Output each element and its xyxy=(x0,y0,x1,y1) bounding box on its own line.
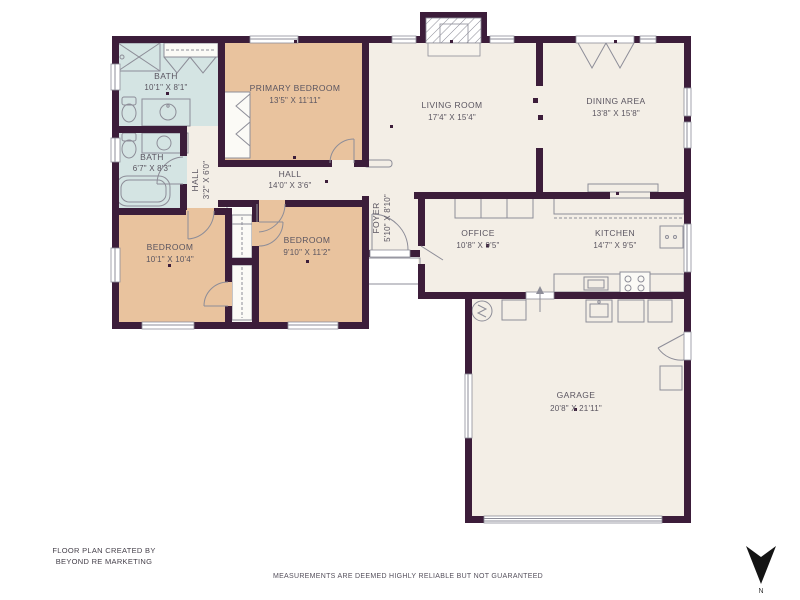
room-label-hall: HALL xyxy=(279,169,302,179)
room-dims-dining-area: 13'8" X 15'8" xyxy=(592,109,640,118)
room-label-dining-area: DINING AREA xyxy=(586,96,645,106)
north-label: N xyxy=(758,588,763,595)
fireplace xyxy=(420,12,487,56)
disclaimer-text: MEASUREMENTS ARE DEEMED HIGHLY RELIABLE … xyxy=(273,573,543,580)
room-label-bedroom-right: BEDROOM xyxy=(284,235,331,245)
room-label-bath1: BATH xyxy=(154,71,178,81)
room-label-hall-small: HALL xyxy=(190,169,200,192)
room-label-office: OFFICE xyxy=(461,228,495,238)
room-dims-garage: 20'8" X 21'11" xyxy=(550,404,602,413)
footer: FLOOR PLAN CREATED BY BEYOND RE MARKETIN… xyxy=(52,546,776,595)
room-label-bath2: BATH xyxy=(140,152,164,162)
room-label-foyer: FOYER xyxy=(371,202,381,233)
room-dims-primary-bedroom: 13'5" X 11'11" xyxy=(269,96,320,105)
floor-plan-page: BATH 10'1" X 8'1" PRIMARY BEDROOM 13'5" … xyxy=(0,0,800,600)
credit-line-2: BEYOND RE MARKETING xyxy=(56,557,153,566)
room-dims-bedroom-left: 10'1" X 10'4" xyxy=(146,255,194,264)
room-label-bedroom-left: BEDROOM xyxy=(147,242,194,252)
room-dims-bedroom-right: 9'10" X 11'2" xyxy=(283,248,330,257)
room-dims-bath2: 6'7" X 8'3" xyxy=(133,164,172,173)
room-dims-hall-small: 3'2" X 6'0" xyxy=(202,161,211,200)
floor-plan-drawing: BATH 10'1" X 8'1" PRIMARY BEDROOM 13'5" … xyxy=(0,0,800,600)
room-dims-kitchen: 14'7" X 9'5" xyxy=(593,241,636,250)
north-arrow-icon: N xyxy=(746,546,776,595)
room-dims-foyer: 5'10" X 8'10" xyxy=(383,194,392,242)
room-label-kitchen: KITCHEN xyxy=(595,228,635,238)
room-label-primary-bedroom: PRIMARY BEDROOM xyxy=(250,83,341,93)
room-label-garage: GARAGE xyxy=(557,390,596,400)
credit-line-1: FLOOR PLAN CREATED BY xyxy=(52,546,155,555)
room-dims-hall: 14'0" X 3'6" xyxy=(268,181,311,190)
room-label-living-room: LIVING ROOM xyxy=(421,100,482,110)
room-dims-office: 10'8" X 9'5" xyxy=(456,241,499,250)
room-dims-living-room: 17'4" X 15'4" xyxy=(428,113,476,122)
room-dims-bath1: 10'1" X 8'1" xyxy=(144,83,187,92)
